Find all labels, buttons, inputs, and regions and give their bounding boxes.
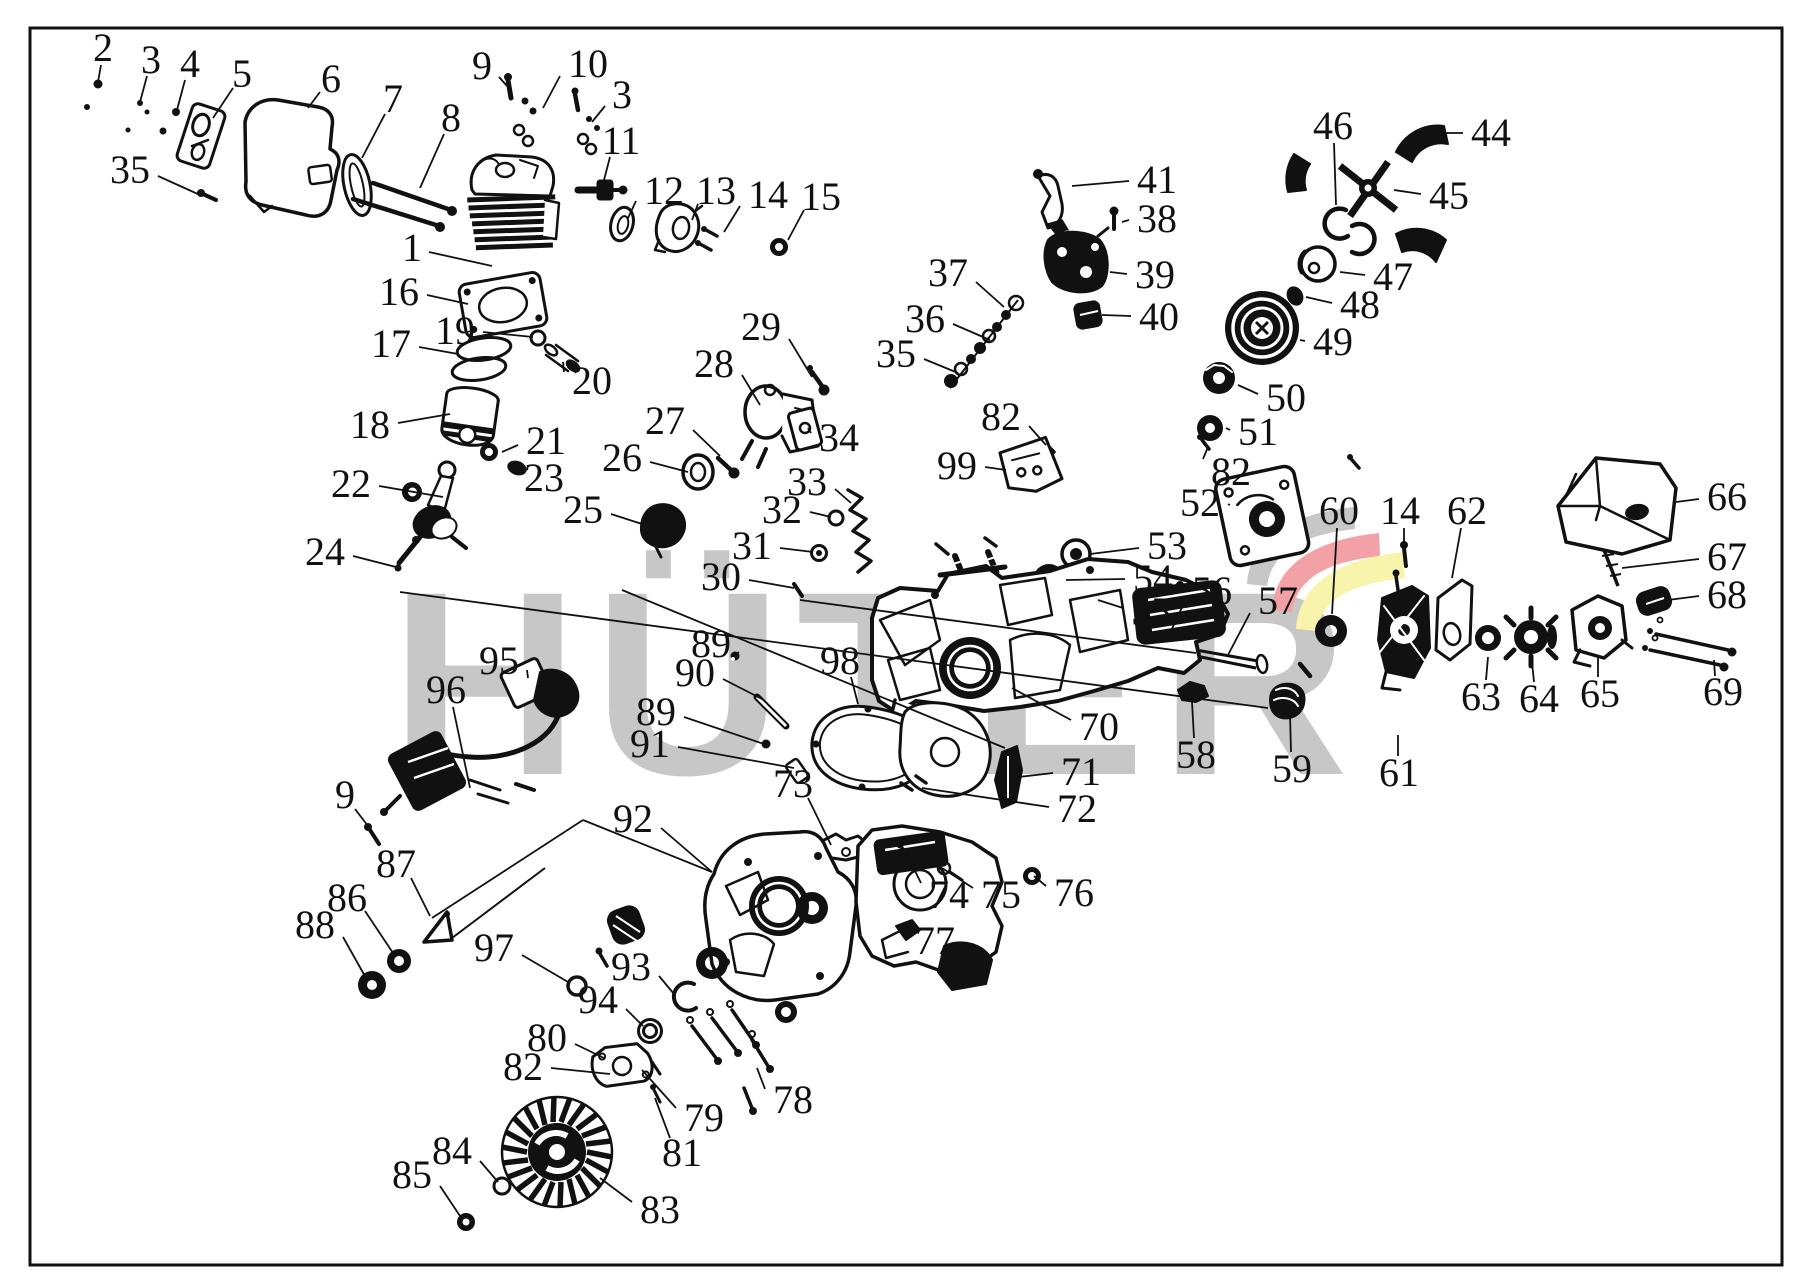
- svg-text:6: 6: [321, 56, 341, 101]
- svg-text:38: 38: [1137, 196, 1177, 241]
- svg-text:97: 97: [474, 925, 514, 970]
- svg-text:10: 10: [568, 41, 608, 86]
- svg-text:84: 84: [432, 1128, 472, 1173]
- svg-text:26: 26: [602, 435, 642, 480]
- svg-text:57: 57: [1258, 578, 1298, 623]
- svg-text:15: 15: [801, 174, 841, 219]
- svg-text:73: 73: [773, 761, 813, 806]
- svg-text:40: 40: [1139, 294, 1179, 339]
- svg-text:18: 18: [350, 402, 390, 447]
- svg-text:60: 60: [1319, 488, 1359, 533]
- svg-text:91: 91: [630, 721, 670, 766]
- svg-text:12: 12: [644, 168, 684, 213]
- svg-text:92: 92: [613, 796, 653, 841]
- svg-text:98: 98: [820, 638, 860, 683]
- svg-text:76: 76: [1054, 870, 1094, 915]
- svg-text:22: 22: [331, 461, 371, 506]
- svg-text:35: 35: [876, 331, 916, 376]
- svg-text:46: 46: [1313, 103, 1353, 148]
- svg-text:94: 94: [578, 977, 618, 1022]
- svg-text:44: 44: [1471, 110, 1511, 155]
- svg-text:14: 14: [1380, 488, 1420, 533]
- svg-text:56: 56: [1192, 568, 1232, 613]
- svg-text:1: 1: [402, 225, 422, 270]
- svg-text:39: 39: [1135, 252, 1175, 297]
- svg-text:55: 55: [1131, 589, 1171, 634]
- svg-text:14: 14: [748, 172, 788, 217]
- svg-text:30: 30: [701, 554, 741, 599]
- svg-text:7: 7: [383, 76, 403, 121]
- svg-text:3: 3: [612, 72, 632, 117]
- svg-text:82: 82: [981, 394, 1021, 439]
- svg-text:99: 99: [937, 443, 977, 488]
- svg-text:87: 87: [376, 841, 416, 886]
- svg-text:45: 45: [1429, 173, 1469, 218]
- svg-text:72: 72: [1057, 786, 1097, 831]
- svg-text:25: 25: [563, 487, 603, 532]
- svg-text:66: 66: [1707, 474, 1747, 519]
- svg-text:61: 61: [1379, 750, 1419, 795]
- svg-text:8: 8: [441, 95, 461, 140]
- svg-text:75: 75: [981, 872, 1021, 917]
- svg-text:63: 63: [1461, 674, 1501, 719]
- svg-text:9: 9: [335, 772, 355, 817]
- svg-text:74: 74: [929, 872, 969, 917]
- svg-text:24: 24: [305, 529, 345, 574]
- svg-text:34: 34: [819, 415, 859, 460]
- svg-text:52: 52: [1180, 480, 1220, 525]
- svg-text:16: 16: [379, 269, 419, 314]
- svg-text:51: 51: [1238, 409, 1278, 454]
- svg-text:95: 95: [479, 638, 519, 683]
- svg-text:78: 78: [773, 1077, 813, 1122]
- svg-text:81: 81: [662, 1130, 702, 1175]
- svg-text:9: 9: [472, 43, 492, 88]
- svg-text:62: 62: [1447, 488, 1487, 533]
- svg-text:82: 82: [503, 1044, 543, 1089]
- svg-text:13: 13: [696, 168, 736, 213]
- svg-text:49: 49: [1313, 319, 1353, 364]
- svg-text:29: 29: [741, 304, 781, 349]
- svg-text:2: 2: [93, 25, 113, 70]
- svg-text:37: 37: [928, 250, 968, 295]
- svg-text:5: 5: [232, 51, 252, 96]
- svg-text:90: 90: [675, 650, 715, 695]
- svg-text:20: 20: [572, 358, 612, 403]
- svg-text:85: 85: [392, 1152, 432, 1197]
- svg-text:68: 68: [1707, 572, 1747, 617]
- svg-text:77: 77: [915, 918, 955, 963]
- svg-text:3: 3: [141, 37, 161, 82]
- svg-text:23: 23: [524, 455, 564, 500]
- svg-text:69: 69: [1703, 669, 1743, 714]
- svg-text:17: 17: [371, 321, 411, 366]
- svg-text:58: 58: [1176, 732, 1216, 777]
- svg-text:11: 11: [602, 118, 641, 163]
- svg-text:35: 35: [110, 147, 150, 192]
- svg-text:70: 70: [1079, 704, 1119, 749]
- svg-text:83: 83: [640, 1187, 680, 1232]
- svg-text:4: 4: [180, 41, 200, 86]
- svg-text:96: 96: [426, 667, 466, 712]
- svg-text:88: 88: [295, 902, 335, 947]
- svg-text:65: 65: [1580, 671, 1620, 716]
- svg-text:28: 28: [694, 341, 734, 386]
- svg-text:64: 64: [1519, 676, 1559, 721]
- svg-text:27: 27: [645, 398, 685, 443]
- svg-text:19: 19: [435, 308, 475, 353]
- svg-text:59: 59: [1272, 746, 1312, 791]
